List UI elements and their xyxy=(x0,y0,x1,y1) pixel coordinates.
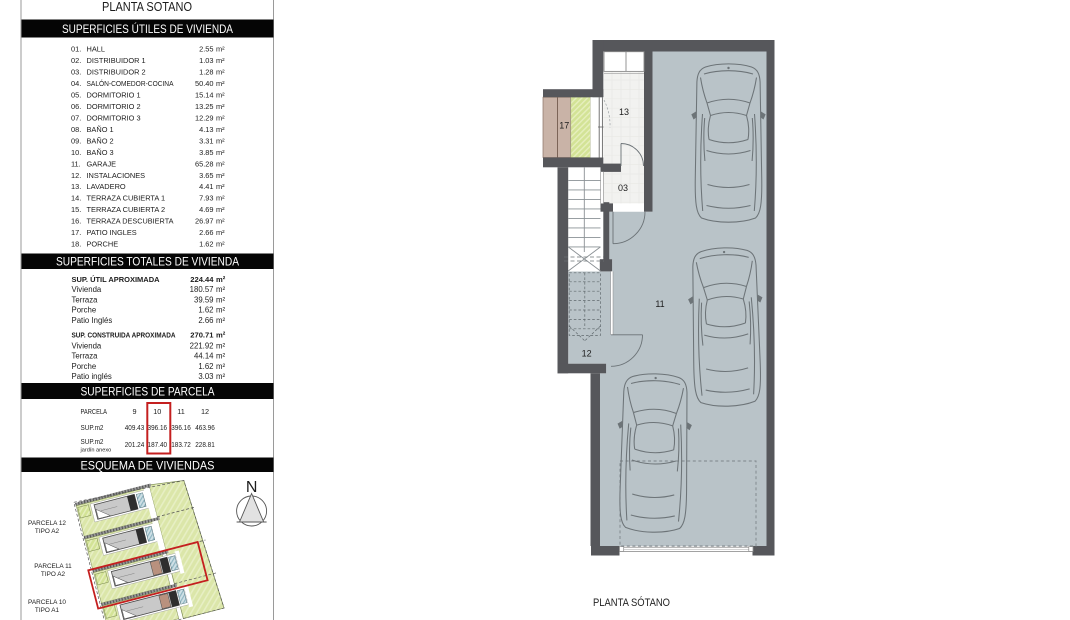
svg-text:SUP. CONSTRUIDA APROXIMADA: SUP. CONSTRUIDA APROXIMADA xyxy=(72,331,176,340)
svg-text:m²: m² xyxy=(216,295,225,304)
svg-text:17: 17 xyxy=(559,120,569,130)
svg-text:18.: 18. xyxy=(71,240,81,249)
svg-text:m²: m² xyxy=(216,372,225,381)
svg-text:m²: m² xyxy=(216,342,225,351)
svg-text:7.93: 7.93 xyxy=(199,194,213,203)
svg-text:Patio inglés: Patio inglés xyxy=(72,372,112,381)
svg-text:INSTALACIONES: INSTALACIONES xyxy=(87,171,146,180)
svg-text:Vivienda: Vivienda xyxy=(72,285,102,294)
svg-text:03: 03 xyxy=(618,183,628,193)
svg-text:15.14: 15.14 xyxy=(195,91,214,100)
svg-text:1.28: 1.28 xyxy=(199,68,213,77)
svg-text:BAÑO 2: BAÑO 2 xyxy=(87,136,114,145)
svg-text:m²: m² xyxy=(216,182,225,191)
svg-text:15.: 15. xyxy=(71,205,81,214)
svg-text:04.: 04. xyxy=(71,79,81,88)
svg-text:m²: m² xyxy=(216,228,225,237)
svg-text:4.69: 4.69 xyxy=(199,205,213,214)
svg-text:Patio Inglés: Patio Inglés xyxy=(72,316,113,325)
svg-text:m²: m² xyxy=(216,68,225,77)
svg-text:2.66: 2.66 xyxy=(199,228,213,237)
svg-text:9: 9 xyxy=(132,407,136,416)
svg-text:39.59: 39.59 xyxy=(194,295,214,304)
svg-text:m²: m² xyxy=(216,217,225,226)
svg-text:13.: 13. xyxy=(71,182,81,191)
svg-text:187.40: 187.40 xyxy=(148,440,168,449)
svg-text:03.: 03. xyxy=(71,68,81,77)
svg-text:2.66: 2.66 xyxy=(198,316,213,325)
svg-text:1.62: 1.62 xyxy=(198,306,213,315)
svg-text:11: 11 xyxy=(655,299,664,309)
svg-text:3.31: 3.31 xyxy=(199,136,213,145)
svg-text:m²: m² xyxy=(216,56,225,65)
svg-text:12: 12 xyxy=(582,348,592,358)
svg-text:3.03: 3.03 xyxy=(198,372,213,381)
svg-text:Terraza: Terraza xyxy=(72,295,99,304)
svg-text:m²: m² xyxy=(216,148,225,157)
svg-text:TERRAZA CUBIERTA 1: TERRAZA CUBIERTA 1 xyxy=(87,194,166,203)
svg-text:05.: 05. xyxy=(71,91,81,100)
svg-text:TIPO A1: TIPO A1 xyxy=(35,607,60,614)
svg-text:SUP.m2: SUP.m2 xyxy=(81,437,104,446)
svg-text:m²: m² xyxy=(216,91,225,100)
svg-text:m²: m² xyxy=(216,205,225,214)
svg-text:201.24: 201.24 xyxy=(125,440,145,449)
svg-text:396.16: 396.16 xyxy=(148,423,168,432)
svg-text:4.13: 4.13 xyxy=(199,125,213,134)
svg-text:m²: m² xyxy=(216,171,225,180)
svg-text:m²: m² xyxy=(216,285,225,294)
svg-text:DORMITORIO 2: DORMITORIO 2 xyxy=(87,102,141,111)
svg-text:PLANTA SÓTANO: PLANTA SÓTANO xyxy=(593,596,670,609)
svg-text:221.92: 221.92 xyxy=(190,342,214,351)
svg-text:m²: m² xyxy=(216,316,225,325)
svg-text:65.28: 65.28 xyxy=(195,159,214,168)
svg-text:2.55: 2.55 xyxy=(199,45,213,54)
svg-text:m²: m² xyxy=(216,352,225,361)
svg-text:m²: m² xyxy=(216,136,225,145)
svg-text:TERRAZA CUBIERTA 2: TERRAZA CUBIERTA 2 xyxy=(87,205,166,214)
svg-text:3.85: 3.85 xyxy=(199,148,213,157)
svg-text:07.: 07. xyxy=(71,113,81,122)
svg-text:1.62: 1.62 xyxy=(199,240,213,249)
svg-text:TIPO A2: TIPO A2 xyxy=(41,571,66,578)
svg-text:m²: m² xyxy=(216,306,225,315)
svg-text:SUP. ÚTIL APROXIMADA: SUP. ÚTIL APROXIMADA xyxy=(72,275,161,284)
svg-text:01.: 01. xyxy=(71,45,81,54)
svg-text:m²: m² xyxy=(216,194,225,203)
svg-text:Porche: Porche xyxy=(72,362,97,371)
svg-text:m²: m² xyxy=(216,362,225,371)
svg-text:HALL: HALL xyxy=(87,45,106,54)
svg-text:270.71: 270.71 xyxy=(190,331,214,340)
svg-text:m²: m² xyxy=(216,79,225,88)
svg-text:m²: m² xyxy=(216,275,226,284)
svg-text:1.62: 1.62 xyxy=(198,362,213,371)
svg-text:TERRAZA DESCUBIERTA: TERRAZA DESCUBIERTA xyxy=(87,217,174,226)
svg-text:13.25: 13.25 xyxy=(195,102,214,111)
svg-text:DISTRIBUIDOR 2: DISTRIBUIDOR 2 xyxy=(87,68,146,77)
svg-text:PLANTA SOTANO: PLANTA SOTANO xyxy=(102,0,192,14)
svg-text:08.: 08. xyxy=(71,125,81,134)
svg-text:PATIO INGLES: PATIO INGLES xyxy=(87,228,137,237)
svg-text:Terraza: Terraza xyxy=(72,352,99,361)
svg-text:N: N xyxy=(246,479,258,496)
svg-text:1.03: 1.03 xyxy=(199,56,213,65)
svg-text:DORMITORIO 3: DORMITORIO 3 xyxy=(87,113,141,122)
svg-text:10: 10 xyxy=(153,407,161,416)
svg-text:11: 11 xyxy=(177,407,185,416)
svg-text:09.: 09. xyxy=(71,136,81,145)
svg-text:12.29: 12.29 xyxy=(195,113,214,122)
svg-text:10.: 10. xyxy=(71,148,81,157)
svg-text:224.44: 224.44 xyxy=(190,275,214,284)
svg-text:228.81: 228.81 xyxy=(195,440,215,449)
svg-text:SUP.m2: SUP.m2 xyxy=(81,423,104,432)
svg-text:BAÑO 1: BAÑO 1 xyxy=(87,125,114,134)
svg-text:409.43: 409.43 xyxy=(125,423,145,432)
svg-text:463.96: 463.96 xyxy=(195,423,215,432)
svg-text:m²: m² xyxy=(216,240,225,249)
svg-text:PORCHE: PORCHE xyxy=(87,240,119,249)
svg-text:44.14: 44.14 xyxy=(194,352,214,361)
svg-text:LAVADERO: LAVADERO xyxy=(87,182,126,191)
svg-text:ESQUEMA DE VIVIENDAS: ESQUEMA DE VIVIENDAS xyxy=(81,459,215,472)
svg-text:m²: m² xyxy=(216,45,225,54)
svg-text:BAÑO 3: BAÑO 3 xyxy=(87,148,114,157)
svg-text:m²: m² xyxy=(216,125,225,134)
svg-text:m²: m² xyxy=(216,159,225,168)
svg-text:GARAJE: GARAJE xyxy=(87,159,117,168)
svg-text:Porche: Porche xyxy=(72,306,97,315)
svg-text:DISTRIBUIDOR 1: DISTRIBUIDOR 1 xyxy=(87,56,146,65)
svg-text:SUPERFICIES ÚTILES DE VIVIENDA: SUPERFICIES ÚTILES DE VIVIENDA xyxy=(62,23,233,36)
svg-text:396.16: 396.16 xyxy=(171,423,191,432)
svg-text:26.97: 26.97 xyxy=(195,217,214,226)
svg-text:Vivienda: Vivienda xyxy=(72,342,102,351)
svg-text:17.: 17. xyxy=(71,228,81,237)
svg-text:DORMITORIO 1: DORMITORIO 1 xyxy=(87,91,141,100)
svg-text:183.72: 183.72 xyxy=(171,440,191,449)
svg-text:16.: 16. xyxy=(71,217,81,226)
svg-text:12.: 12. xyxy=(71,171,81,180)
svg-text:3.65: 3.65 xyxy=(199,171,213,180)
svg-text:PARCELA 12: PARCELA 12 xyxy=(28,520,66,527)
svg-text:12: 12 xyxy=(201,407,209,416)
svg-text:13: 13 xyxy=(619,107,629,117)
svg-text:4.41: 4.41 xyxy=(199,182,213,191)
svg-text:PARCELA: PARCELA xyxy=(81,407,108,416)
svg-text:02.: 02. xyxy=(71,56,81,65)
svg-text:TIPO A2: TIPO A2 xyxy=(35,528,60,535)
svg-text:180.57: 180.57 xyxy=(190,285,214,294)
svg-text:SUPERFICIES TOTALES DE VIVIEND: SUPERFICIES TOTALES DE VIVIENDA xyxy=(56,256,239,269)
svg-text:PARCELA 10: PARCELA 10 xyxy=(28,599,66,606)
svg-text:06.: 06. xyxy=(71,102,81,111)
svg-text:14.: 14. xyxy=(71,194,81,203)
svg-text:50.40: 50.40 xyxy=(195,79,214,88)
svg-text:SUPERFICIES DE PARCELA: SUPERFICIES DE PARCELA xyxy=(81,386,215,399)
svg-text:SALÓN-COMEDOR-COCINA: SALÓN-COMEDOR-COCINA xyxy=(87,79,174,88)
svg-text:11.: 11. xyxy=(71,159,81,168)
svg-text:m²: m² xyxy=(216,102,225,111)
svg-text:jardín anexo: jardín anexo xyxy=(80,448,112,454)
svg-text:m²: m² xyxy=(216,113,225,122)
svg-text:m²: m² xyxy=(216,331,226,340)
svg-text:PARCELA 11: PARCELA 11 xyxy=(34,563,72,570)
